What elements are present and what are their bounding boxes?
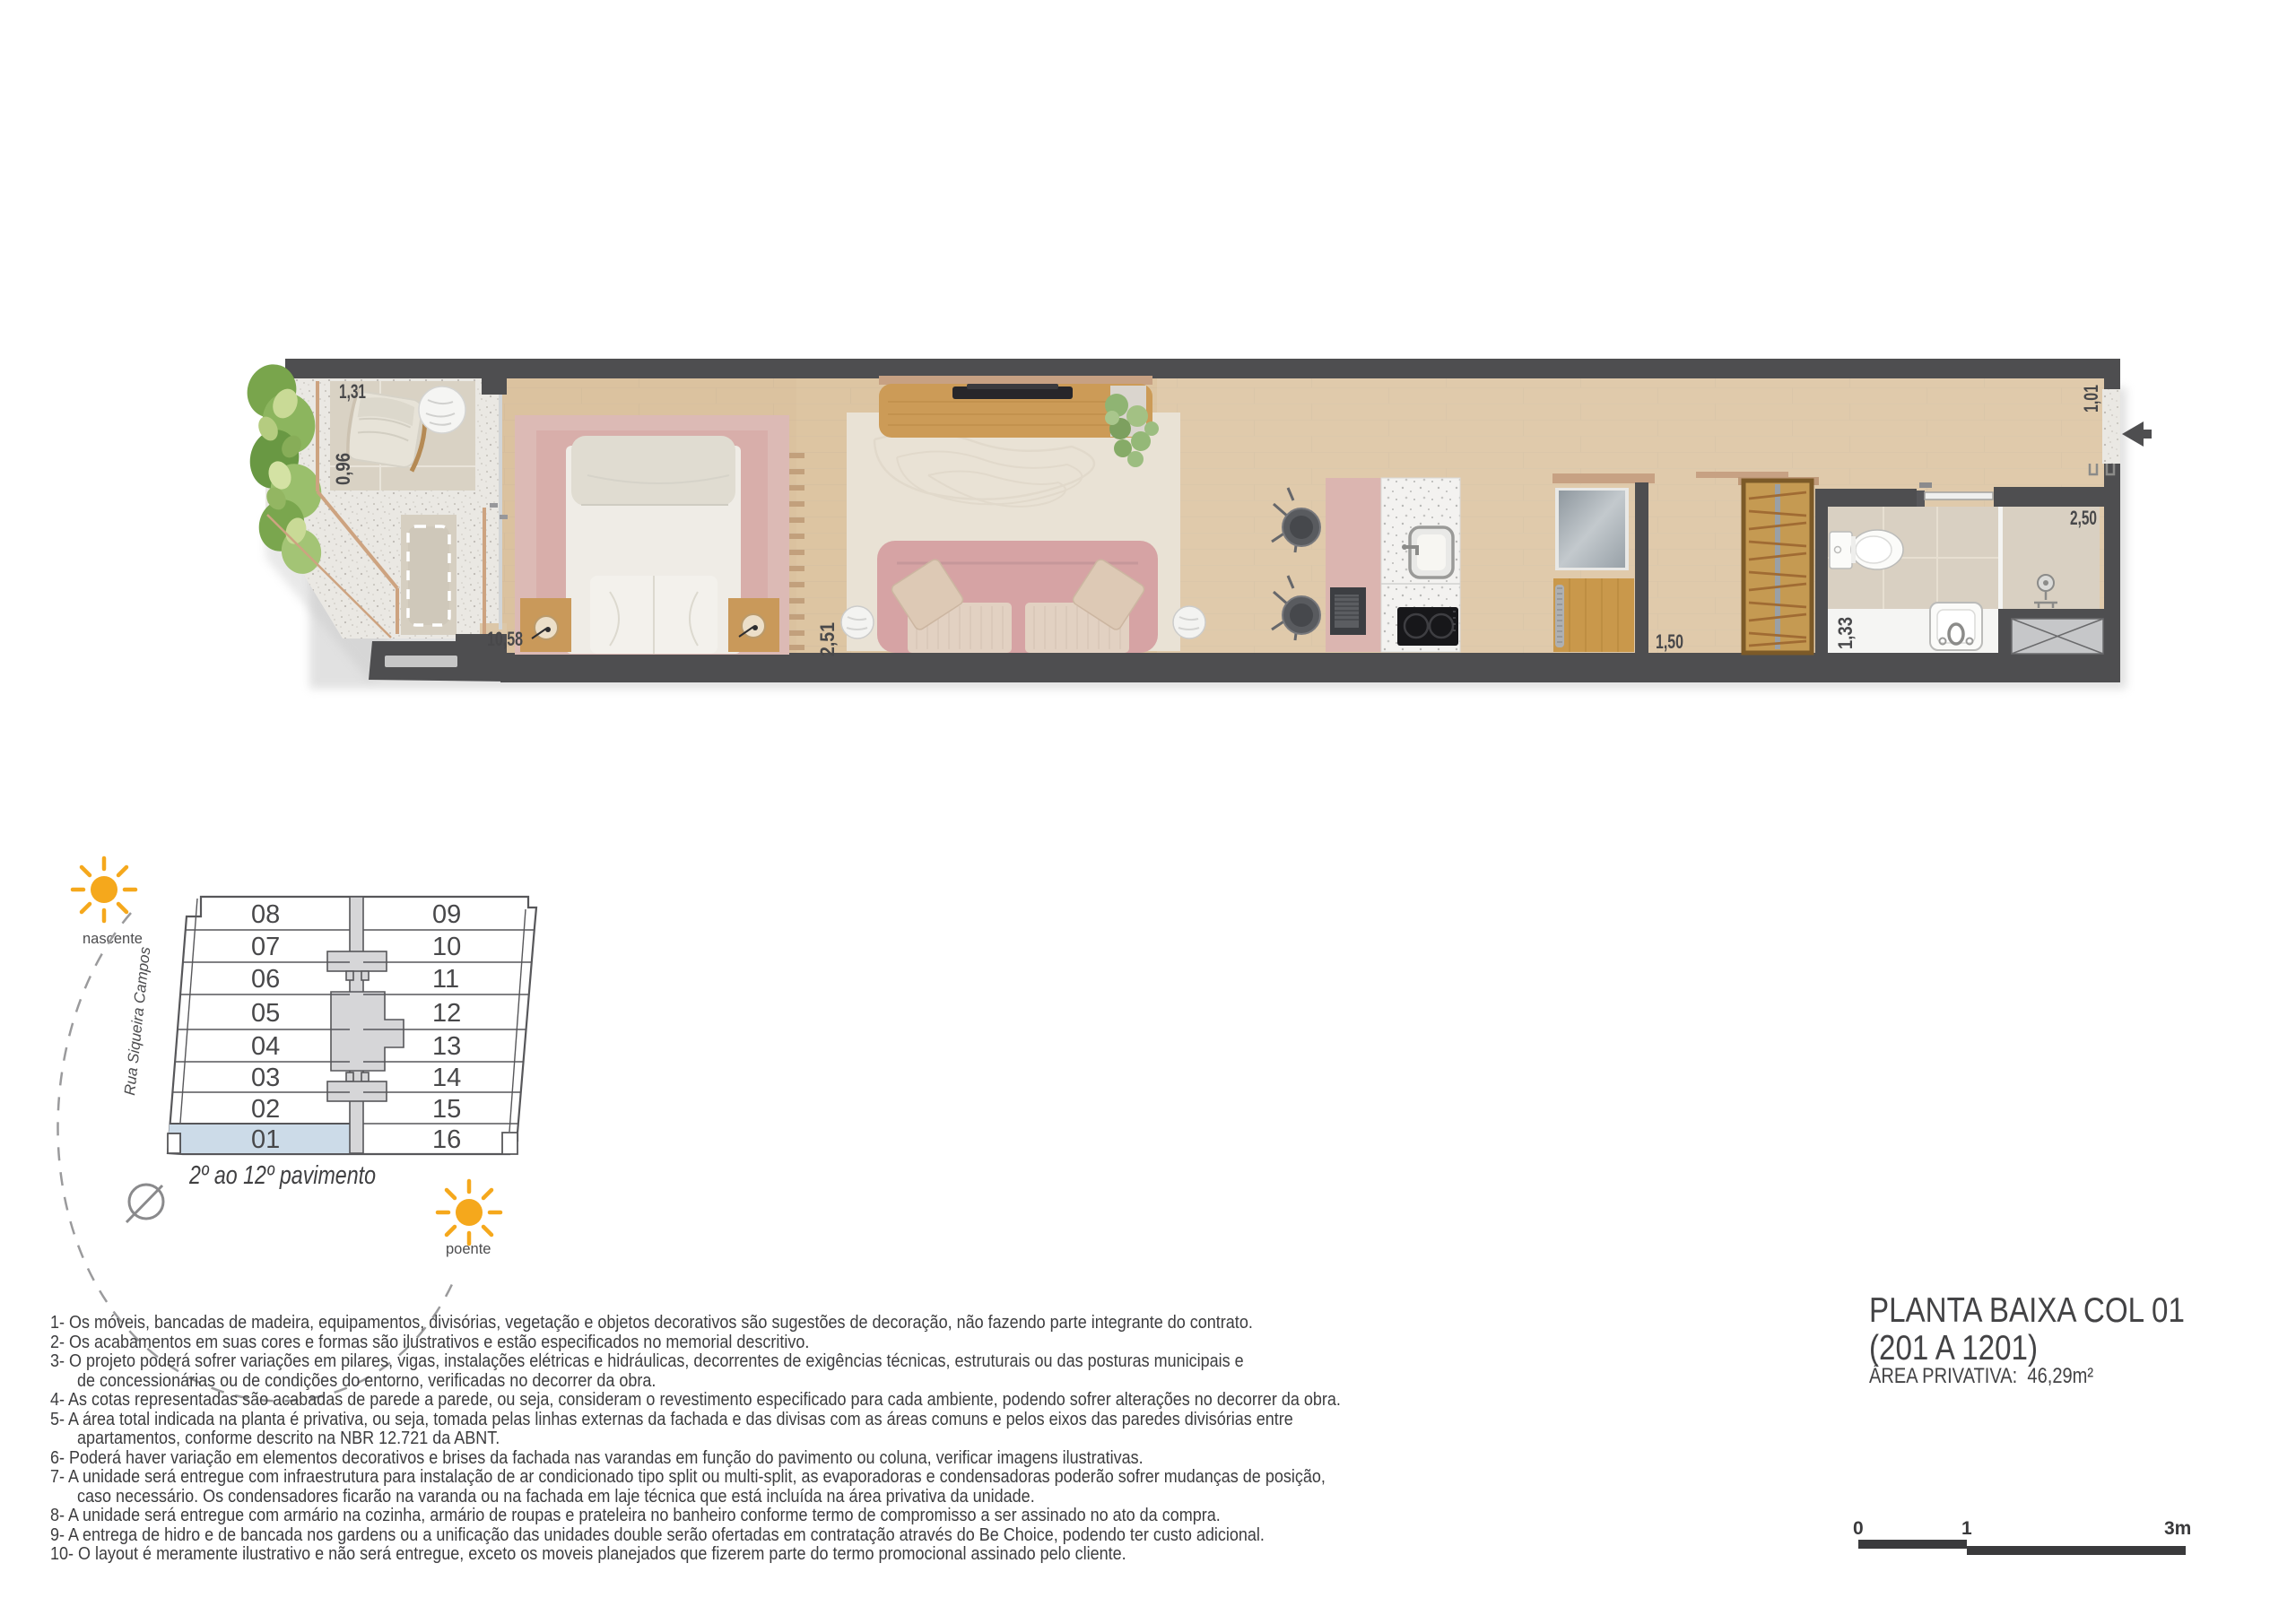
svg-text:12: 12	[432, 999, 461, 1028]
svg-text:3m: 3m	[2164, 1518, 2191, 1539]
svg-text:16: 16	[432, 1125, 461, 1154]
svg-text:15: 15	[432, 1095, 461, 1124]
svg-text:06: 06	[251, 965, 280, 994]
svg-text:03: 03	[251, 1064, 280, 1092]
svg-text:07: 07	[251, 933, 280, 961]
svg-text:1,33: 1,33	[1834, 617, 1857, 649]
svg-text:05: 05	[251, 999, 280, 1028]
svg-text:14: 14	[432, 1064, 461, 1092]
svg-text:poente: poente	[446, 1241, 491, 1257]
svg-text:13: 13	[432, 1032, 461, 1061]
svg-text:0,96: 0,96	[332, 453, 354, 485]
svg-text:Rua Siqueira Campos: Rua Siqueira Campos	[121, 946, 153, 1097]
svg-text:09: 09	[432, 900, 461, 929]
svg-text:11: 11	[432, 965, 459, 994]
svg-text:1,01: 1,01	[2080, 385, 2102, 413]
svg-text:10,58: 10,58	[487, 628, 523, 650]
svg-text:1,31: 1,31	[339, 380, 366, 403]
svg-text:1: 1	[1961, 1518, 1972, 1539]
svg-text:0: 0	[1853, 1518, 1864, 1539]
svg-text:08: 08	[251, 900, 280, 929]
svg-text:2,50: 2,50	[2070, 507, 2097, 529]
svg-text:2º ao 12º pavimento: 2º ao 12º pavimento	[188, 1161, 376, 1190]
svg-text:2,51: 2,51	[816, 622, 839, 656]
svg-text:1,50: 1,50	[1656, 630, 1683, 653]
svg-text:04: 04	[251, 1032, 280, 1061]
svg-text:02: 02	[251, 1095, 280, 1124]
svg-text:01: 01	[251, 1125, 280, 1154]
svg-text:10: 10	[432, 933, 461, 961]
